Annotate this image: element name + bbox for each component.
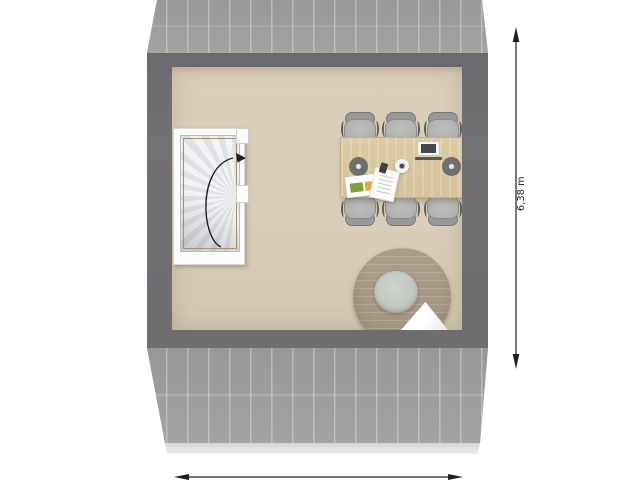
stair-wall-stub-mid	[236, 185, 249, 203]
arrow-up-icon	[513, 27, 520, 42]
arrow-down-icon	[513, 354, 520, 369]
dining-chair	[424, 194, 462, 226]
room-floor	[172, 67, 462, 330]
stair-wall-stub-top	[236, 128, 249, 144]
roof-slope-bottom	[145, 348, 490, 443]
floor-plan-canvas: 6,38 m	[0, 0, 640, 480]
placemat	[442, 157, 461, 176]
spiral-staircase	[180, 135, 240, 252]
chair-seat	[427, 195, 459, 219]
laptop-screen	[421, 144, 436, 153]
dining-chair	[341, 194, 379, 226]
arrow-right-icon	[448, 474, 463, 480]
laptop	[417, 141, 440, 156]
roof-eave-strip	[164, 443, 481, 454]
laptop-keyboard	[415, 157, 442, 160]
placemat	[349, 157, 368, 176]
paper-text-lines	[376, 175, 394, 196]
chair-seat	[344, 195, 376, 219]
stair-railing	[183, 138, 237, 249]
lounge-cushion	[374, 271, 418, 313]
roof-slope-top	[145, 0, 490, 53]
vertical-dimension-label: 6,38 m	[516, 181, 528, 211]
brochure-image-green	[350, 182, 364, 193]
staircase-enclosure	[173, 128, 245, 265]
arrow-left-icon	[174, 474, 189, 480]
